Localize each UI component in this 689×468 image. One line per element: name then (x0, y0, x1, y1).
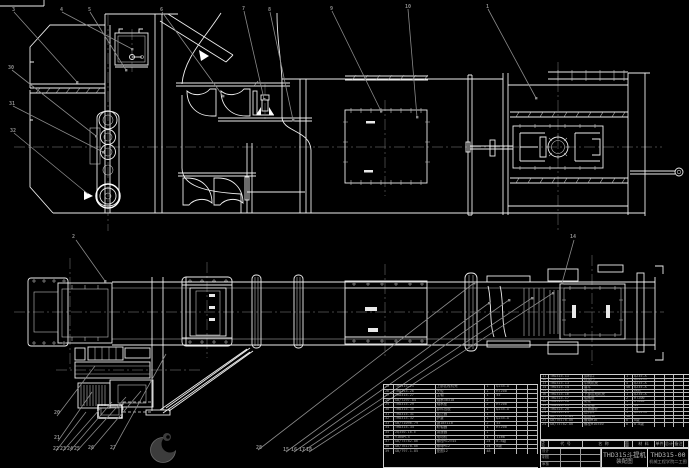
bom-cell (665, 405, 674, 408)
org-name: 机械工程学院二工图 (649, 459, 687, 464)
bom-cell: THD315-31 (394, 413, 436, 417)
bom-cell (655, 382, 665, 385)
bom-cell (665, 408, 674, 411)
bom-header-cell: 数量 (625, 441, 633, 447)
bom-cell: 23 (541, 419, 549, 422)
bom-cell (655, 416, 665, 419)
drawing-subtitle: 装配图 (616, 459, 633, 465)
bom-cell (528, 399, 538, 403)
bom-row: 39GB/T97.1-85垫圈1248 (384, 449, 538, 454)
bom-cell (674, 419, 684, 422)
balloon-label: 31 (9, 102, 15, 107)
bom-cell: Q235-A (633, 375, 655, 378)
bom-cell: 30 (384, 408, 394, 412)
bom-cell: 2 (625, 397, 633, 400)
bom-cell (674, 405, 684, 408)
bom-cell (528, 440, 538, 444)
bom-cell: 护罩 (436, 417, 486, 421)
balloon-label: 4 (60, 8, 63, 13)
bom-cell (528, 445, 538, 449)
bom-cell (528, 385, 538, 389)
bom-cell: GB/T297-84 (394, 399, 436, 403)
bom-cell: Q235-A (495, 385, 517, 389)
bom-cell (674, 397, 684, 400)
bom-cell: 1 (485, 431, 495, 435)
bom-table-right: 11THD315-11卸料口1Q235-A12THD315-12检视门1Q235… (540, 374, 689, 440)
bom-cell: GB/T97.1-85 (394, 449, 436, 454)
bom-cell (665, 397, 674, 400)
bom-cell: Q235-A (495, 408, 517, 412)
bom-cell (665, 423, 674, 427)
bom-cell: 1 (625, 412, 633, 415)
bom-cell: 13 (541, 382, 549, 385)
bom-cell: 电动机 (436, 436, 486, 440)
bom-cell: 8.8级 (633, 423, 655, 427)
bom-cell: 卸料挡板 (436, 408, 486, 412)
bom-cell: 26 (384, 390, 394, 394)
bom-cell: GB/T5782-86 (394, 440, 436, 444)
bom-cell: 1 (625, 393, 633, 396)
bom-cell (495, 413, 517, 417)
bom-cell (674, 379, 684, 382)
bom-cell: THD315-34 (394, 426, 436, 430)
bom-cell (655, 375, 665, 378)
bom-cell (517, 449, 528, 454)
leader-endpoint-dots (76, 48, 563, 304)
bom-cell (665, 416, 674, 419)
bom-cell: 15 (541, 390, 549, 393)
bom-cell (495, 449, 517, 454)
bom-cell: 8 (625, 419, 633, 422)
bom-header-cell: 单件 (655, 441, 665, 447)
bom-cell (517, 445, 528, 449)
number-cell: THD315-00 机械工程学院二工图 (648, 449, 688, 467)
bom-cell (665, 386, 674, 389)
bom-cell (655, 393, 665, 396)
bom-cell: 2 (485, 403, 495, 407)
bom-cell: THD315-19 (549, 405, 583, 408)
top-view-elevation (14, 13, 683, 232)
bom-cell (674, 416, 684, 419)
bom-cell (665, 401, 674, 404)
signature-cell (561, 449, 581, 454)
bom-cell: 轴承座 (583, 397, 625, 400)
bom-cell: Q235-A (633, 379, 655, 382)
bom-cell: 33 (384, 422, 394, 426)
bom-cell: 垫圈12 (436, 449, 486, 454)
bom-cell: Q235-A (633, 393, 655, 396)
bom-cell: 逆止器 (436, 413, 486, 417)
bom-cell (674, 382, 684, 385)
bom-cell (528, 431, 538, 435)
bom-cell: 下部区段机壳 (583, 393, 625, 396)
bom-cell (665, 393, 674, 396)
bom-cell: 1 (625, 401, 633, 404)
bom-cell: GB/T97.1-85 (549, 416, 583, 419)
bom-cell: 45 (633, 405, 655, 408)
bom-cell: 2 (625, 408, 633, 411)
bom-cell: 34 (384, 426, 394, 430)
signature-grid: 设计制图审核 (541, 449, 602, 467)
bom-cell: 8级 (495, 445, 517, 449)
bom-cell: THD315-13 (549, 382, 583, 385)
bom-cell: 减速器 (436, 431, 486, 435)
bom-cell: 尾轮 (583, 401, 625, 404)
bom-cell: 1 (485, 408, 495, 412)
bom-cell: 35 (384, 431, 394, 435)
bom-cell (517, 422, 528, 426)
bom-cell (517, 426, 528, 430)
bom-cell: 2 (485, 399, 495, 403)
bom-cell: 37 (384, 440, 394, 444)
bom-row: 24GB/T5782-86螺栓M16×5088.8级 (541, 423, 689, 427)
balloon-label: 25 (74, 447, 80, 452)
bom-cell (674, 423, 684, 427)
balloon-label: 17 (299, 448, 305, 453)
bom-cell: 1 (485, 385, 495, 389)
balloon-label: 18 (306, 448, 312, 453)
bom-cell (665, 375, 674, 378)
bom-cell: 橡胶 (633, 390, 655, 393)
title-block: 设计制图审核 THD315斗提机 装配图 THD315-00 机械工程学院二工图 (540, 448, 689, 468)
bom-cell: 联轴器 (436, 426, 486, 430)
drawing-title: THD315斗提机 (603, 452, 646, 459)
bom-cell (655, 419, 665, 422)
bom-cell: 28 (384, 399, 394, 403)
bom-header-cell: 序号 (541, 441, 549, 447)
bom-cell (655, 408, 665, 411)
bom-header-cell: 代 号 (549, 441, 583, 447)
bom-cell: 45 (495, 394, 517, 398)
bom-cell: 尾轮轴 (583, 405, 625, 408)
balloon-label: 24 (67, 447, 73, 452)
bom-cell: HT200 (633, 401, 655, 404)
bom-cell (665, 419, 674, 422)
bom-cell (655, 412, 665, 415)
bom-cell (517, 436, 528, 440)
bom-cell: 螺栓M12×45 (436, 440, 486, 444)
bom-cell: 18 (541, 401, 549, 404)
bom-cell: 46 (625, 386, 633, 389)
balloon-label: 20 (54, 411, 60, 416)
signature-cell: 设计 (541, 449, 561, 454)
bom-cell: 11kW (495, 436, 517, 440)
bom-cell: 24 (485, 440, 495, 444)
bom-header-row: 序号代 号名 称数量材 料单件总计备注 (540, 440, 689, 448)
bom-cell: GB/T1096-79 (394, 422, 436, 426)
bom-cell: 上部区段机壳 (436, 385, 486, 389)
bom-cell: Q235-A (633, 386, 655, 389)
balloon-label: 6 (160, 8, 163, 13)
bom-cell (528, 390, 538, 394)
balloon-label: 15 (283, 448, 289, 453)
bom-cell: 1 (485, 417, 495, 421)
bom-cell: THD315-14 (549, 386, 583, 389)
bom-cell (674, 393, 684, 396)
ink-blob (151, 433, 179, 463)
bom-cell: 畚斗 (583, 386, 625, 389)
bom-cell (665, 382, 674, 385)
signature-cell (581, 455, 601, 460)
balloon-label: 5 (88, 8, 91, 13)
bom-cell: THD315-30 (394, 408, 436, 412)
bom-cell (517, 417, 528, 421)
bom-cell: 1 (625, 375, 633, 378)
bom-cell: 16 (625, 416, 633, 419)
bom-cell: GB/T6170-86 (549, 419, 583, 422)
bom-cell: HT200 (495, 390, 517, 394)
bom-cell: 1 (485, 394, 495, 398)
bom-cell (528, 394, 538, 398)
bom-cell (655, 405, 665, 408)
bom-cell: 8 (625, 423, 633, 427)
bom-cell: THD315-26 (394, 390, 436, 394)
bom-cell: Y160M-4 (394, 436, 436, 440)
bom-cell: THD315-32 (394, 417, 436, 421)
balloon-label: 32 (10, 129, 16, 134)
bom-cell: THD315-29 (394, 403, 436, 407)
bom-cell: 1 (485, 436, 495, 440)
bom-cell: 45 (633, 408, 655, 411)
bom-cell: 1 (485, 426, 495, 430)
bom-cell (528, 417, 538, 421)
bom-cell: Q235-A (495, 417, 517, 421)
cad-viewport: 3456789101303132214202122232425262728151… (0, 0, 689, 468)
bom-cell: 头轮 (436, 390, 486, 394)
bom-cell (655, 401, 665, 404)
bom-cell: 12 (541, 379, 549, 382)
balloon-label: 22 (53, 447, 59, 452)
bom-cell: ZQ350-16-Ⅱ (394, 431, 436, 435)
bom-cell: 8级 (633, 419, 655, 422)
bom-cell: 17 (541, 397, 549, 400)
bom-cell: 螺母M16 (583, 419, 625, 422)
bom-cell (665, 412, 674, 415)
bom-cell: 31 (384, 413, 394, 417)
bom-cell: THD315-18 (549, 401, 583, 404)
bom-cell: THD315-17 (549, 397, 583, 400)
frame-corner (0, 0, 44, 6)
bom-cell: 轴承30310 (436, 399, 486, 403)
bom-cell: 11 (541, 375, 549, 378)
bom-cell: HT200 (495, 403, 517, 407)
bom-cell (674, 401, 684, 404)
bom-cell (517, 394, 528, 398)
bom-cell: 48 (485, 449, 495, 454)
bom-cell (517, 385, 528, 389)
bom-cell: 39 (384, 449, 394, 454)
bom-cell: 主轴 (436, 394, 486, 398)
bom-cell: 检视门 (583, 379, 625, 382)
bom-cell: 36 (384, 436, 394, 440)
bom-cell: HT200 (633, 397, 655, 400)
bom-cell: 中间机壳 (583, 382, 625, 385)
balloon-label: 1 (486, 5, 489, 10)
bom-cell: 19 (541, 405, 549, 408)
bom-cell (655, 390, 665, 393)
balloon-label: 3 (12, 8, 15, 13)
bom-cell (528, 449, 538, 454)
balloon-label: 26 (88, 446, 94, 451)
bom-cell (528, 408, 538, 412)
bom-cell: 16 (541, 393, 549, 396)
bom-header-cell: 名 称 (583, 441, 625, 447)
bom-cell (633, 416, 655, 419)
bom-cell: 2 (485, 422, 495, 426)
bom-cell: 1 (625, 405, 633, 408)
bom-cell: 轴承座 (436, 403, 486, 407)
bom-cell: 25 (384, 385, 394, 389)
balloon-label: 28 (256, 446, 262, 451)
bom-cell (517, 431, 528, 435)
bom-cell: 32 (384, 417, 394, 421)
bom-cell (517, 440, 528, 444)
bom-cell: 29 (384, 403, 394, 407)
bom-cell: THD315-25 (394, 385, 436, 389)
bom-cell (495, 431, 517, 435)
balloon-label: 7 (242, 7, 245, 12)
bom-cell: THD315-11 (549, 375, 583, 378)
bom-cell: 螺母M12 (436, 445, 486, 449)
bom-cell (517, 413, 528, 417)
bom-cell (528, 422, 538, 426)
balloon-label: 14 (570, 235, 576, 240)
bom-cell: 进料口 (583, 412, 625, 415)
bom-header-cell: 备注 (674, 441, 684, 447)
bom-cell (528, 426, 538, 430)
bom-cell (495, 399, 517, 403)
bom-cell (528, 436, 538, 440)
bom-cell: 螺栓M16×50 (583, 423, 625, 427)
bom-cell: 1 (625, 379, 633, 382)
bom-header-cell: 材 料 (633, 441, 655, 447)
bom-cell (674, 412, 684, 415)
bom-cell (665, 379, 674, 382)
balloon-label: 21 (54, 436, 60, 441)
bom-cell: 畚斗带 (583, 390, 625, 393)
bom-cell (517, 408, 528, 412)
bom-cell (528, 413, 538, 417)
balloon-label: 27 (110, 446, 116, 451)
bom-cell: GB/T6170-86 (394, 445, 436, 449)
bom-cell (528, 403, 538, 407)
balloon-label: 16 (291, 448, 297, 453)
bom-table-left: 25THD315-25上部区段机壳1Q235-A26THD315-26头轮1HT… (383, 384, 538, 468)
balloon-label: 2 (72, 235, 75, 240)
bom-cell: 27 (384, 394, 394, 398)
bom-cell: 45 (495, 422, 517, 426)
balloon-label: 8 (268, 8, 271, 13)
balloon-label: 30 (8, 66, 14, 71)
bom-cell: 21 (541, 412, 549, 415)
bom-cell: 键18×110 (436, 422, 486, 426)
bom-cell (517, 403, 528, 407)
balloon-label: 9 (330, 7, 333, 12)
bom-cell (665, 390, 674, 393)
bom-cell (674, 386, 684, 389)
bom-cell: 拉紧螺杆 (583, 408, 625, 411)
bom-cell: 1 (625, 390, 633, 393)
bom-cell: 垫圈16 (583, 416, 625, 419)
signature-cell (581, 462, 601, 467)
bom-header-cell: 总计 (665, 441, 674, 447)
bom-cell: THD315-20 (549, 408, 583, 411)
bom-cell: THD315-21 (549, 412, 583, 415)
balloon-label: 23 (60, 447, 66, 452)
bom-cell (674, 375, 684, 378)
bom-cell (655, 423, 665, 427)
drawing-number: THD315-00 (650, 452, 685, 459)
bom-cell: Q235-A (633, 412, 655, 415)
bom-cell: 24 (485, 445, 495, 449)
signature-row: 审核 (541, 462, 601, 467)
bom-cell (655, 397, 665, 400)
bom-cell (674, 390, 684, 393)
bom-cell: HT200 (495, 426, 517, 430)
bom-cell: 8.8级 (495, 440, 517, 444)
bom-cell: 20 (541, 408, 549, 411)
bom-cell: 1 (485, 390, 495, 394)
bom-cell: THD315-15 (549, 390, 583, 393)
bom-cell: THD315-12 (549, 379, 583, 382)
signature-cell: 审核 (541, 462, 561, 467)
signature-cell (561, 462, 581, 467)
bom-cell: 38 (384, 445, 394, 449)
bom-cell: GB/T5782-86 (549, 423, 583, 427)
bom-cell: 22 (541, 416, 549, 419)
signature-cell (561, 455, 581, 460)
signature-cell (581, 449, 601, 454)
bom-cell: 卸料口 (583, 375, 625, 378)
bom-cell: 24 (541, 423, 549, 427)
bom-cell (655, 386, 665, 389)
bom-cell: THD315-16 (549, 393, 583, 396)
bom-cell (517, 399, 528, 403)
bom-cell: 14 (541, 386, 549, 389)
title-cell: THD315斗提机 装配图 (602, 449, 648, 467)
bom-cell (674, 408, 684, 411)
bom-cell (655, 379, 665, 382)
bom-cell: Q235-A (633, 382, 655, 385)
bom-cell: 1 (485, 413, 495, 417)
bom-cell: THD315-27 (394, 394, 436, 398)
signature-cell: 制图 (541, 455, 561, 460)
bom-cell (517, 390, 528, 394)
bom-cell: 4 (625, 382, 633, 385)
balloon-label: 10 (405, 5, 411, 10)
